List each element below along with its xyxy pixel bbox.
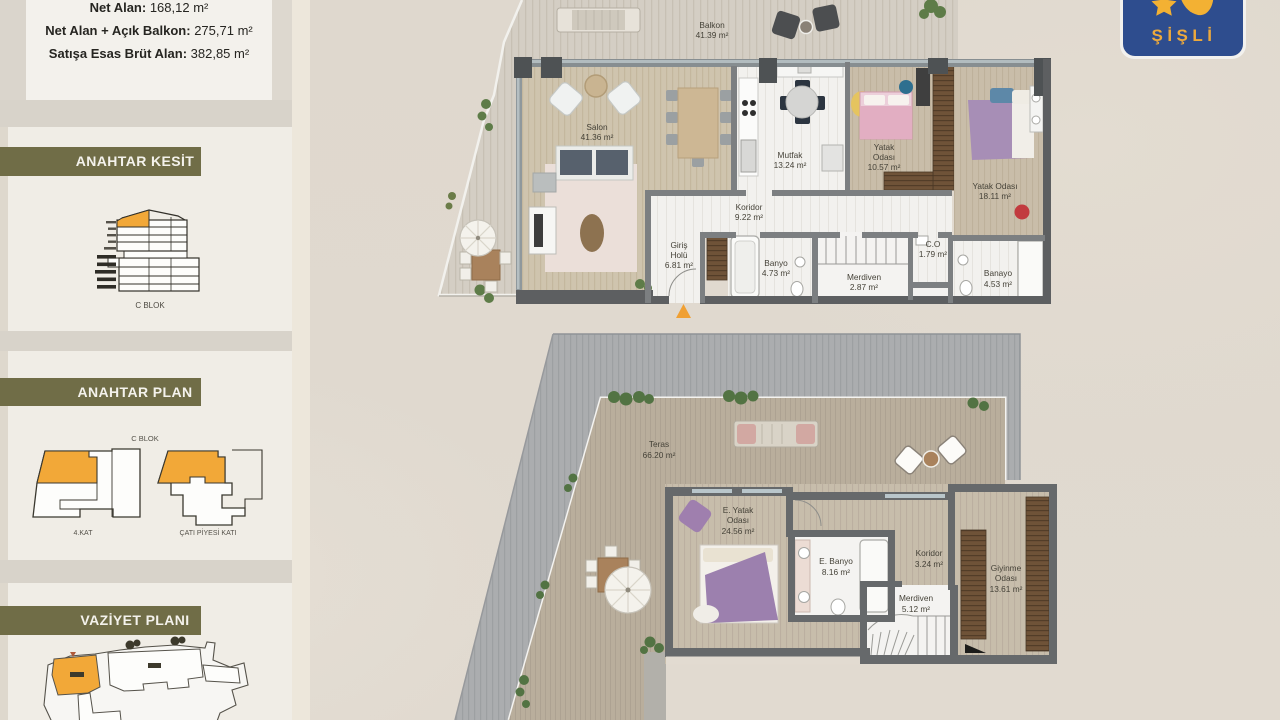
svg-text:4.73 m²: 4.73 m² (762, 268, 790, 278)
svg-text:5.12 m²: 5.12 m² (902, 604, 930, 614)
svg-text:Yatak: Yatak (874, 142, 895, 152)
svg-text:Merdiven: Merdiven (899, 593, 934, 603)
svg-text:Koridor: Koridor (736, 202, 763, 212)
svg-text:Odası: Odası (873, 152, 895, 162)
svg-text:Merdiven: Merdiven (847, 272, 882, 282)
svg-text:Banayo: Banayo (984, 268, 1013, 278)
svg-text:Holü: Holü (670, 250, 687, 260)
svg-text:Giyinme: Giyinme (991, 563, 1022, 573)
svg-text:13.24 m²: 13.24 m² (774, 160, 807, 170)
svg-text:Yatak Odası: Yatak Odası (972, 181, 1017, 191)
svg-text:9.22 m²: 9.22 m² (735, 212, 763, 222)
svg-text:18.11 m²: 18.11 m² (979, 191, 1011, 201)
svg-text:4.53 m²: 4.53 m² (984, 279, 1012, 289)
svg-text:ÇATI PİYESİ KATI: ÇATI PİYESİ KATI (180, 528, 237, 537)
svg-text:Giriş: Giriş (670, 240, 687, 250)
svg-text:4.KAT: 4.KAT (74, 530, 94, 537)
svg-text:8.16 m²: 8.16 m² (822, 567, 850, 577)
svg-text:66.20 m²: 66.20 m² (643, 450, 676, 460)
svg-text:Balkon: Balkon (699, 20, 725, 30)
svg-text:Odası: Odası (995, 573, 1017, 583)
svg-text:Banyo: Banyo (764, 258, 788, 268)
svg-text:Salon: Salon (586, 122, 608, 132)
svg-text:10.57 m²: 10.57 m² (868, 162, 901, 172)
svg-text:6.81 m²: 6.81 m² (665, 260, 693, 270)
svg-text:3.24 m²: 3.24 m² (915, 559, 943, 569)
svg-text:41.36 m²: 41.36 m² (581, 132, 614, 142)
svg-text:E. Yatak: E. Yatak (723, 505, 754, 515)
svg-text:Mutfak: Mutfak (778, 150, 804, 160)
svg-text:24.56 m²: 24.56 m² (722, 526, 755, 536)
svg-text:E. Banyo: E. Banyo (819, 556, 853, 566)
svg-text:C BLOK: C BLOK (131, 434, 159, 443)
svg-text:C BLOK: C BLOK (135, 301, 165, 310)
svg-text:41.39 m²: 41.39 m² (696, 30, 729, 40)
svg-text:C.O: C.O (926, 239, 941, 249)
svg-text:Koridor: Koridor (916, 548, 943, 558)
svg-text:1.79 m²: 1.79 m² (919, 249, 947, 259)
svg-text:13.61 m²: 13.61 m² (990, 584, 1023, 594)
svg-text:ŞİŞLİ: ŞİŞLİ (1151, 26, 1216, 45)
svg-text:Odası: Odası (727, 515, 749, 525)
svg-text:Teras: Teras (649, 439, 669, 449)
svg-text:2.87 m²: 2.87 m² (850, 282, 878, 292)
